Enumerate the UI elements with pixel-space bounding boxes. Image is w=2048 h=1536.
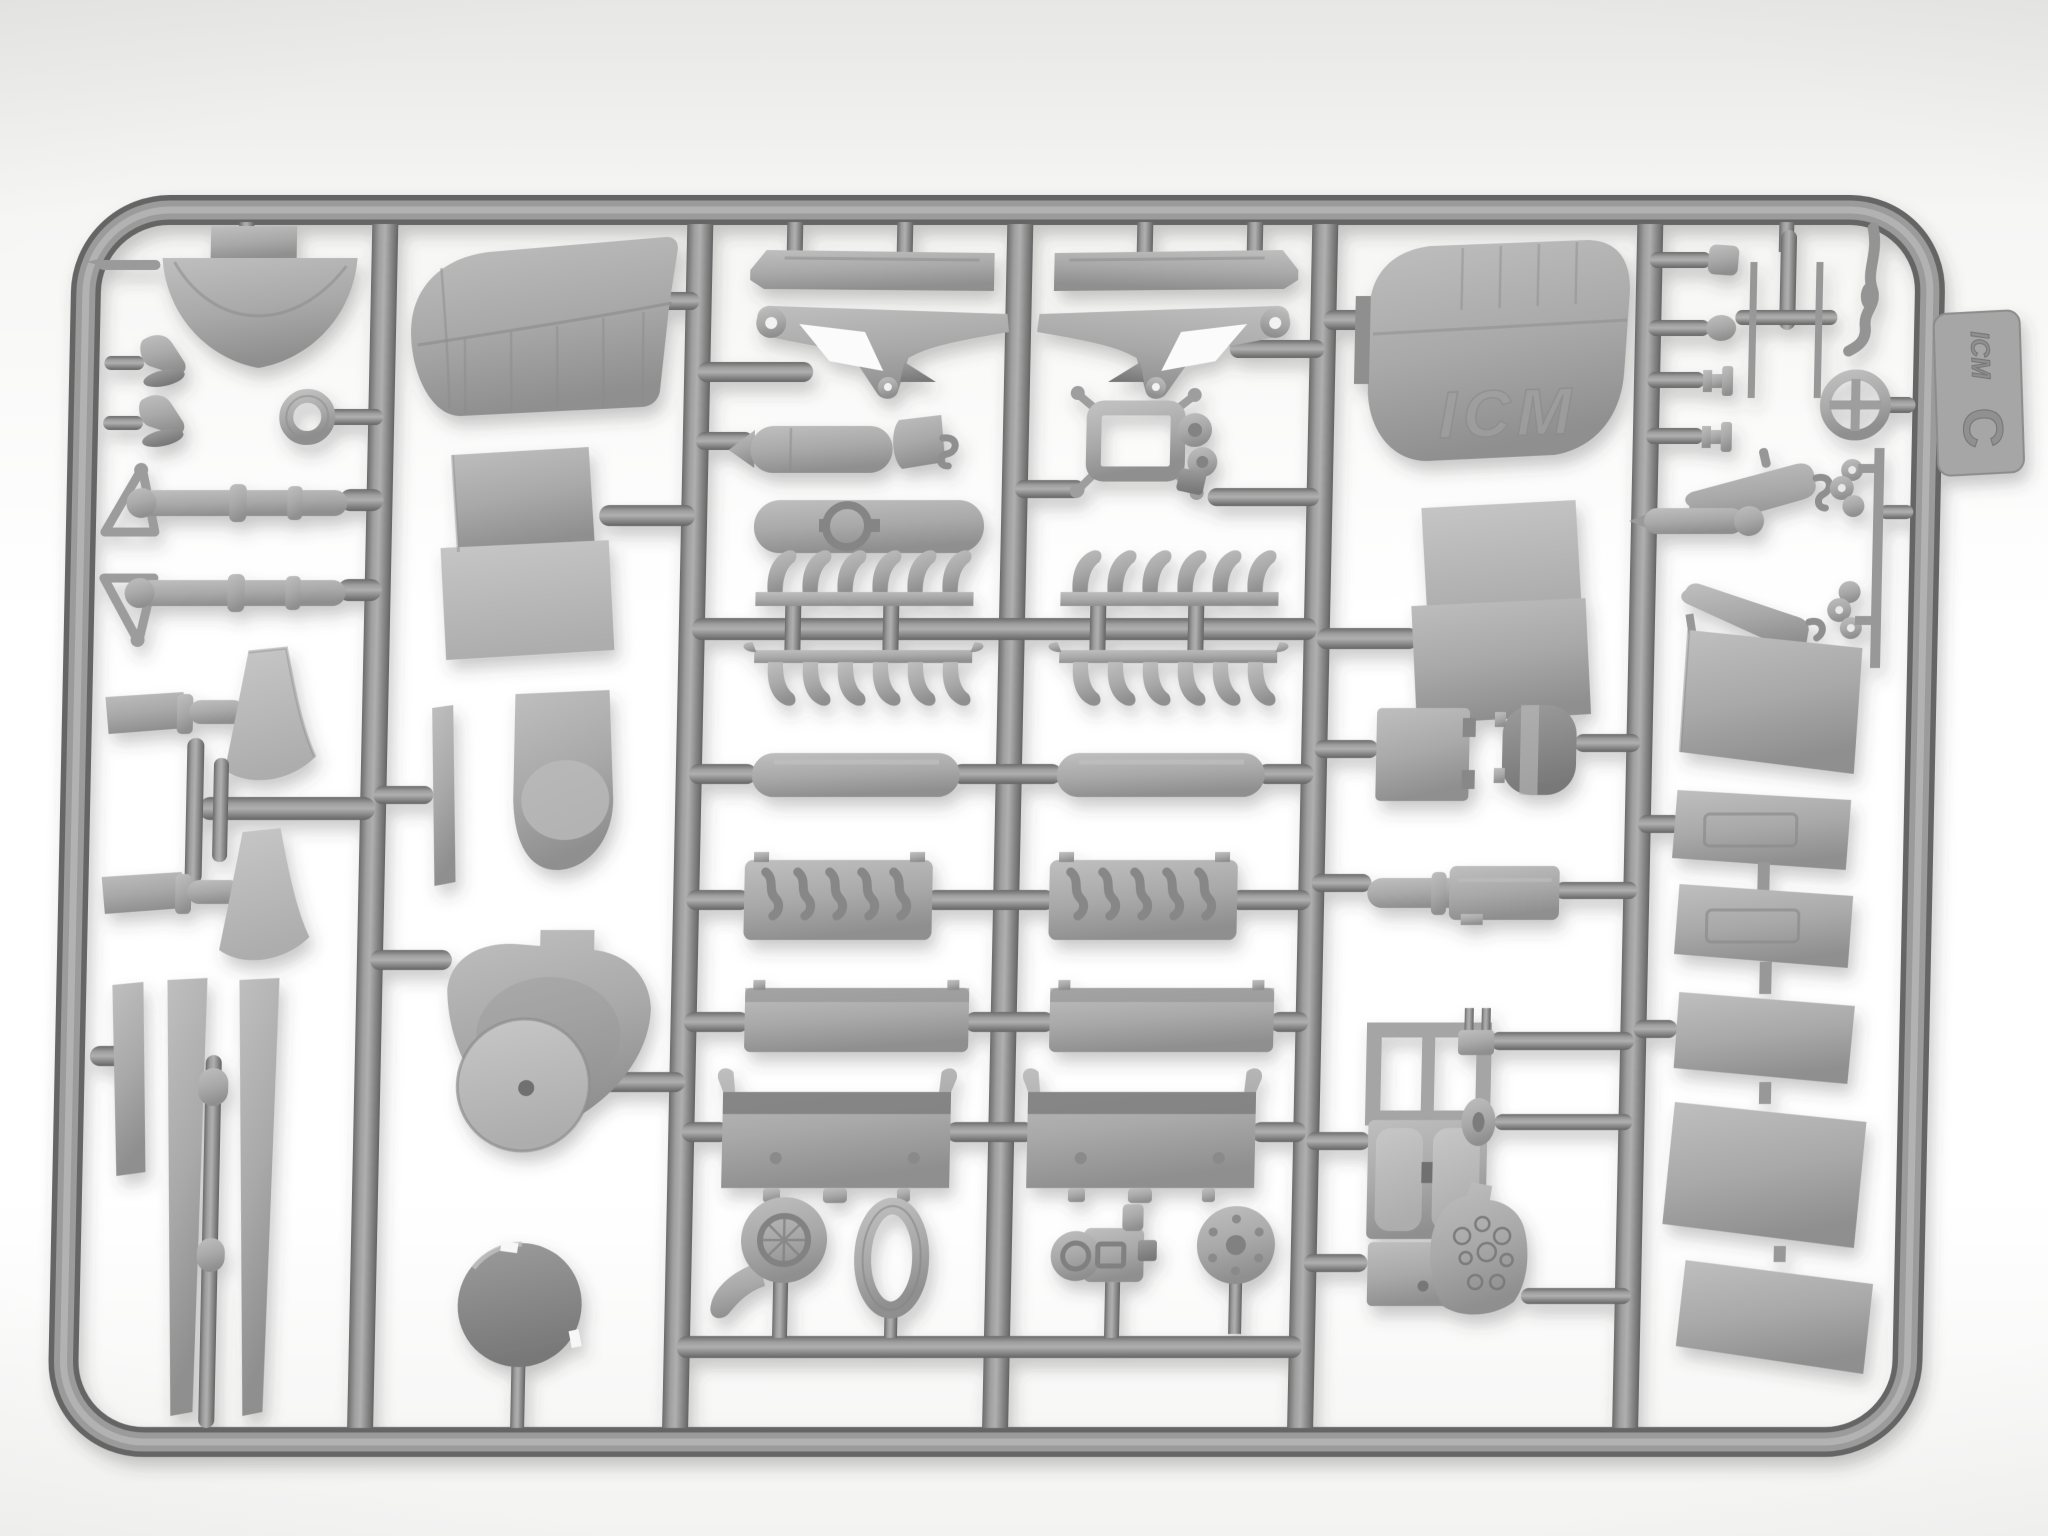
engine-mount-frame: [1069, 386, 1219, 500]
stub: [1247, 222, 1264, 254]
elevator-panel-corner: [1675, 1260, 1873, 1374]
spinner-dome: [455, 1241, 584, 1428]
engine-parts-stack: [680, 550, 1014, 1203]
engine-bearer-rail-mirror: [1054, 250, 1299, 291]
stub: [1207, 488, 1319, 506]
engine-parts-stack-col4: [985, 550, 1319, 1203]
stub: [599, 505, 695, 526]
pronged-bracket: [1458, 1008, 1495, 1055]
clover-runner-bar: [1870, 448, 1885, 668]
stub: [1314, 740, 1378, 758]
cylinder-capsule: [688, 753, 1009, 797]
windscreen-fan-1: [104, 648, 318, 780]
stub: [1633, 1020, 1677, 1038]
stub: [1303, 1254, 1367, 1272]
stub: [1521, 1288, 1631, 1304]
stub: [897, 222, 914, 254]
stub: [1879, 505, 1913, 519]
stub: [1574, 734, 1640, 752]
curved-drum-segment: [1493, 705, 1577, 795]
wingtip-panel: [409, 237, 678, 416]
runner-v3: [982, 224, 1033, 1428]
crankcase-half: [680, 1068, 1003, 1203]
brand-tag: ICM C: [1933, 310, 2024, 476]
fuselage-belly-panel: [512, 690, 616, 870]
aileron-panel-inset-1: [1671, 790, 1851, 892]
cylinder-and-box: [1367, 866, 1560, 925]
wheel-disc: [456, 1019, 591, 1151]
stub: [1306, 1132, 1370, 1150]
stub: [1137, 222, 1154, 254]
stub: [1494, 1114, 1632, 1130]
engine-bearer-rail: [750, 250, 995, 291]
control-wheel: [1825, 375, 1886, 435]
elevator-panel-wide: [1662, 1102, 1867, 1262]
cowl-bowl: [160, 226, 358, 368]
bent-whip-rod: [1849, 228, 1881, 351]
access-hatch-plate: [1375, 708, 1476, 801]
crossbar-engine-bottom: [677, 1336, 1302, 1358]
bracing-strut-rod-2: [102, 574, 346, 647]
exhaust-stack-row-lower: [742, 642, 983, 706]
knob-pin-1: [1649, 244, 1740, 276]
stub: [1311, 874, 1371, 892]
stub: [1555, 882, 1637, 899]
v-strut-bracket: [755, 306, 1010, 399]
cowl-panel-pair: [438, 447, 618, 660]
eyelet-ring: [286, 396, 329, 438]
rudder-pedal-1: [139, 335, 187, 390]
stub: [697, 362, 813, 382]
stub: [103, 416, 143, 430]
bomb-fairing: [728, 426, 893, 473]
upper-wing-panel: ICM: [1352, 240, 1631, 461]
oval-gasket-ring: [861, 1206, 922, 1338]
stub: [1316, 628, 1418, 649]
clover-fitting-1: [1829, 459, 1876, 517]
tapered-ski-2: [230, 978, 279, 1416]
aileron-panel-inset-2: [1673, 884, 1853, 994]
ski-strip-short: [108, 982, 149, 1176]
magneto-pump: [1049, 1204, 1158, 1338]
tag-brand-logo: ICM: [1965, 330, 1997, 380]
stub: [373, 786, 433, 804]
tag-letter: C: [1951, 406, 2015, 450]
wing-embossed-logo: ICM: [1438, 373, 1578, 452]
rudder-pedal-2: [138, 395, 186, 450]
cowl-side-panel-pair: [1409, 500, 1596, 724]
supercharger-volute: [710, 1197, 828, 1338]
runner-v2: [662, 224, 713, 1428]
valve-cover-panel: [753, 500, 984, 553]
bolt-flange-disc: [1195, 1206, 1276, 1334]
stub: [787, 222, 804, 254]
support-bracket: [893, 415, 956, 469]
oval-grommet: [1461, 1098, 1496, 1146]
elevator-panel: [1673, 992, 1855, 1104]
windscreen-fan-2: [100, 828, 312, 960]
crankcase-with-rods: [685, 852, 1007, 940]
valve-box: [683, 980, 1005, 1052]
h-strut-assembly: [1734, 230, 1840, 398]
stub: [370, 950, 452, 970]
runner-v1: [347, 224, 398, 1428]
clover-fitting-2: [1827, 581, 1874, 639]
stub: [104, 356, 144, 370]
photo-stage: ICM C: [0, 0, 2048, 1536]
sprue-photo: ICM C: [0, 0, 2048, 1536]
bracing-strut-rod-1: [105, 463, 348, 532]
stub: [1490, 1032, 1634, 1050]
exhaust-stack-row-upper: [755, 550, 974, 606]
runner-v4: [1287, 224, 1338, 1428]
